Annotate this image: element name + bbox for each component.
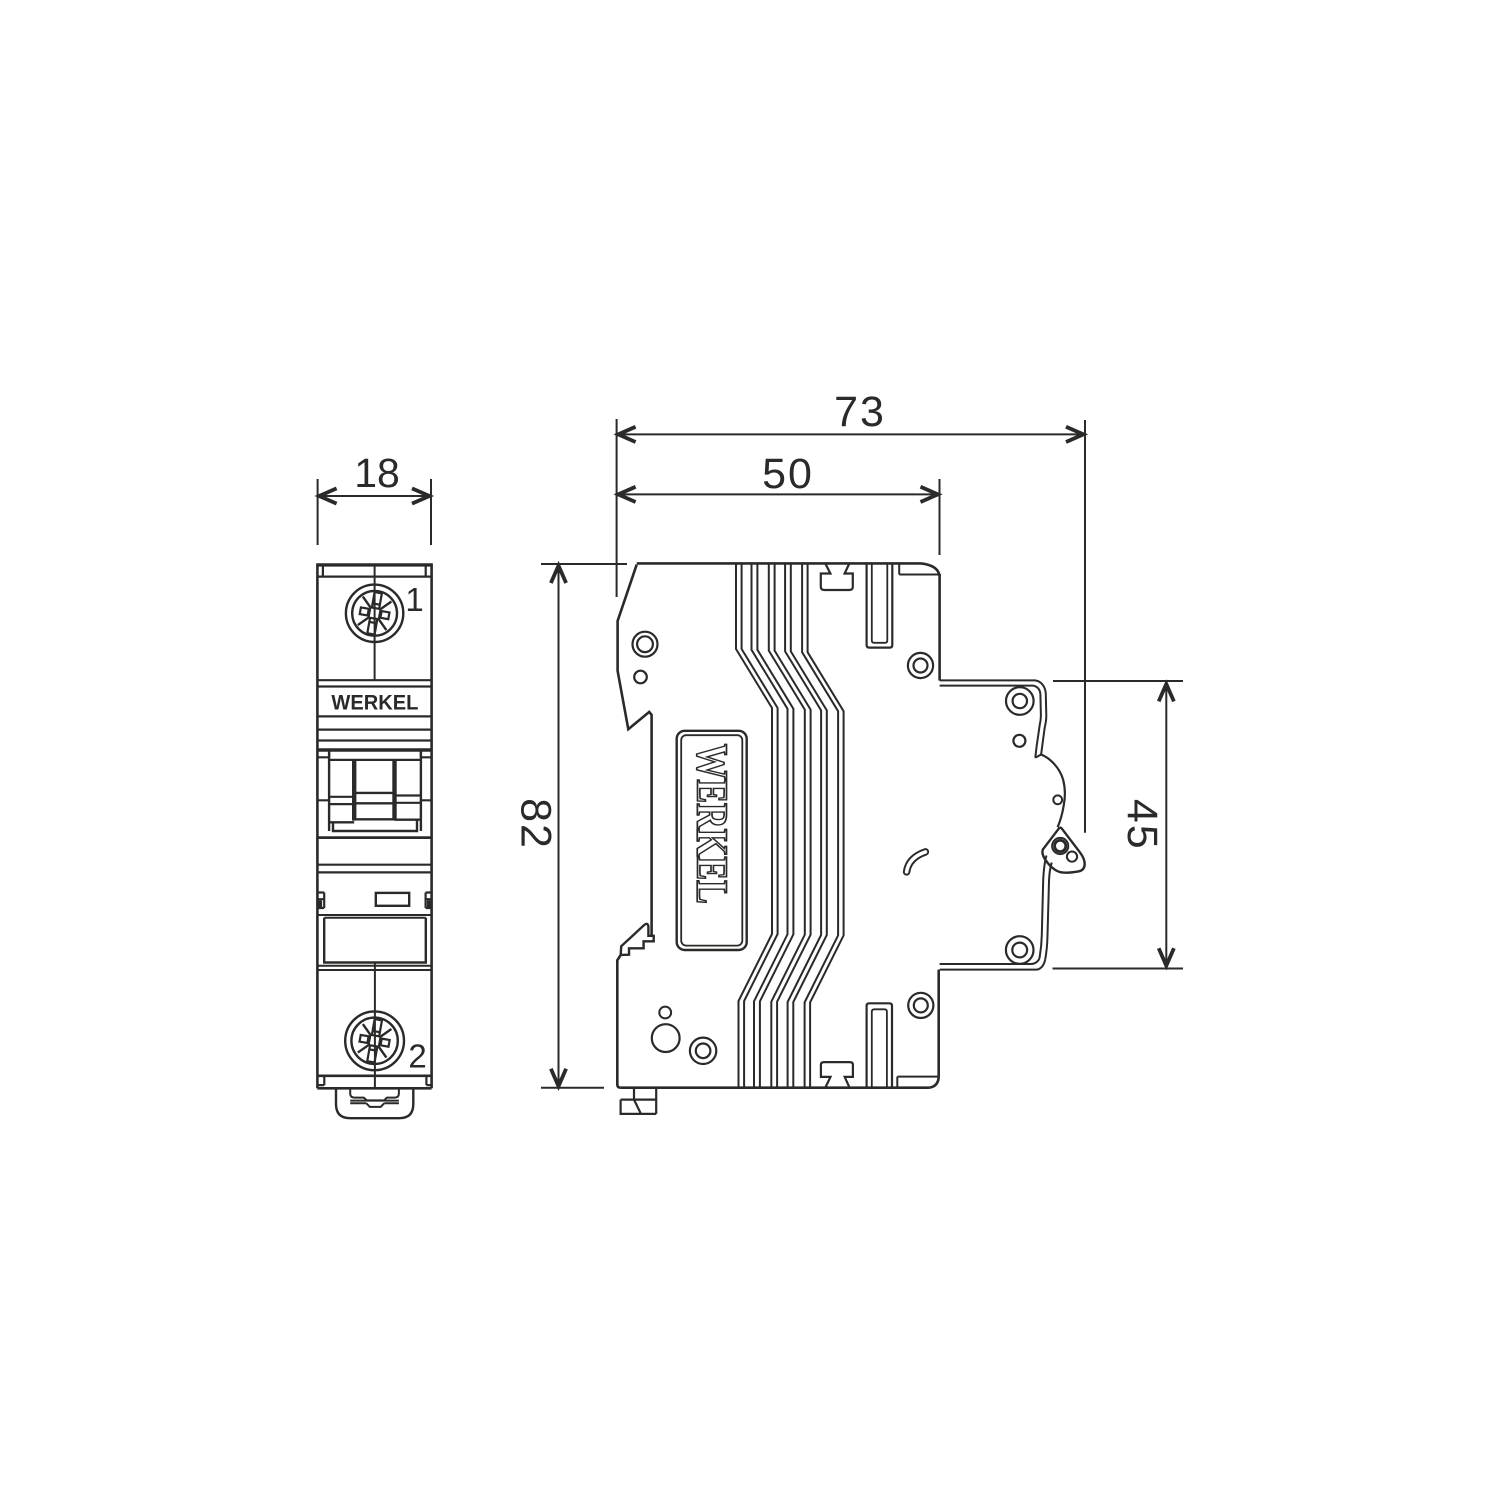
- svg-text:1: 1: [405, 581, 423, 618]
- svg-text:50: 50: [762, 450, 814, 498]
- svg-text:82: 82: [512, 798, 560, 850]
- svg-text:WERKEL: WERKEL: [331, 691, 418, 715]
- svg-text:2: 2: [408, 1038, 426, 1075]
- svg-text:73: 73: [834, 388, 886, 436]
- svg-text:18: 18: [354, 450, 400, 496]
- svg-text:WERKEL: WERKEL: [688, 744, 737, 904]
- svg-text:45: 45: [1118, 799, 1166, 851]
